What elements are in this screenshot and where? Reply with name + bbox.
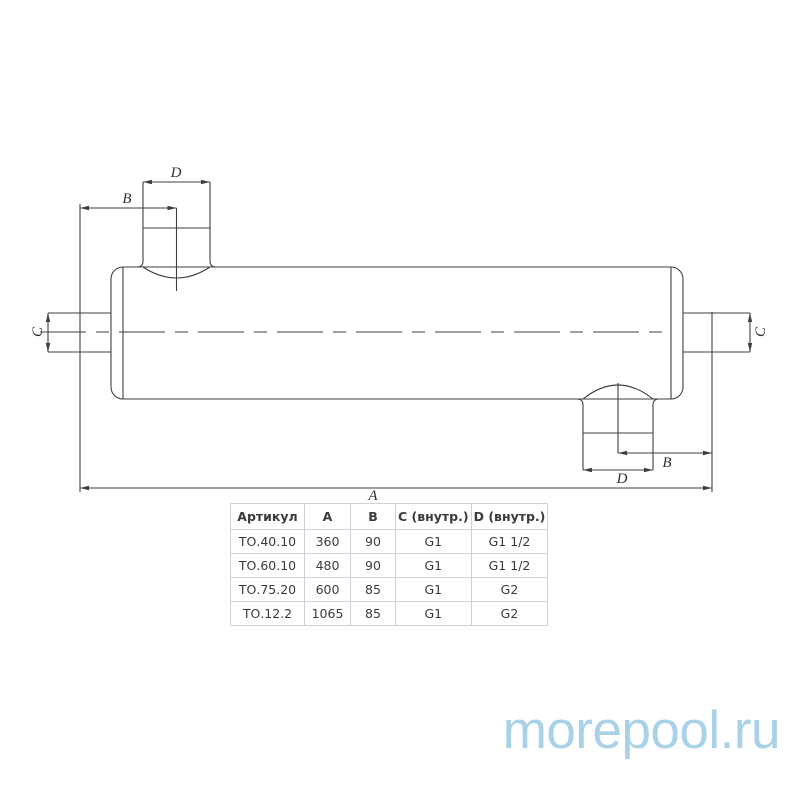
cell-c: G1	[396, 578, 472, 602]
cell-b: 90	[351, 530, 396, 554]
table-header-row: Артикул A B C (внутр.) D (внутр.)	[231, 504, 548, 530]
arrowhead	[618, 451, 627, 455]
arrowhead	[46, 313, 50, 322]
arrowhead	[80, 486, 89, 490]
right-port	[683, 313, 750, 352]
dimension-d-top: D	[143, 165, 210, 184]
cell-a: 600	[305, 578, 351, 602]
bottom-nozzle-right-fillet	[653, 399, 659, 405]
cell-c: G1	[396, 602, 472, 626]
vessel-body	[111, 267, 683, 399]
table-row: ТО.12.2 1065 85 G1 G2	[231, 602, 548, 626]
col-header-article: Артикул	[231, 504, 305, 530]
bottom-nozzle-left-fillet	[577, 399, 583, 405]
technical-drawing: D B C C D	[0, 0, 800, 800]
dimension-c-right: C	[748, 313, 769, 352]
table-row: ТО.60.10 480 90 G1 G1 1/2	[231, 554, 548, 578]
cell-article: ТО.60.10	[231, 554, 305, 578]
dim-label-c-left: C	[30, 326, 46, 337]
cell-b: 90	[351, 554, 396, 578]
dim-label-c-right: C	[753, 326, 769, 337]
col-header-d-inner: D (внутр.)	[471, 504, 548, 530]
dim-label-b-bottom: B	[662, 455, 671, 471]
page: { "drawing": { "labels": { "a": "A", "b"…	[0, 0, 800, 800]
cell-article: ТО.75.20	[231, 578, 305, 602]
col-header-b: B	[351, 504, 396, 530]
cell-d: G2	[471, 602, 548, 626]
cell-article: ТО.40.10	[231, 530, 305, 554]
dim-label-b-top: B	[122, 191, 131, 207]
arrowhead	[748, 313, 752, 322]
arrowhead	[583, 468, 592, 472]
dimension-b-top: B	[80, 191, 177, 210]
col-header-c-inner: C (внутр.)	[396, 504, 472, 530]
cell-d: G1 1/2	[471, 554, 548, 578]
cell-c: G1	[396, 530, 472, 554]
cell-article: ТО.12.2	[231, 602, 305, 626]
dim-label-d-bottom: D	[616, 471, 628, 487]
dimensions-table: Артикул A B C (внутр.) D (внутр.) ТО.40.…	[230, 503, 548, 626]
table-row: ТО.75.20 600 85 G1 G2	[231, 578, 548, 602]
top-nozzle-left-fillet	[137, 261, 143, 267]
arrowhead	[644, 468, 653, 472]
dimension-b-bottom: B	[618, 451, 712, 471]
arrowhead	[143, 180, 152, 184]
col-header-a: A	[305, 504, 351, 530]
site-watermark: morepool.ru	[503, 704, 780, 757]
cell-d: G1 1/2	[471, 530, 548, 554]
arrowhead	[201, 180, 210, 184]
table-row: ТО.40.10 360 90 G1 G1 1/2	[231, 530, 548, 554]
arrowhead	[46, 343, 50, 352]
cell-d: G2	[471, 578, 548, 602]
dimension-a: A	[80, 486, 712, 504]
arrowhead	[703, 486, 712, 490]
dimension-d-bottom: D	[583, 468, 653, 487]
dim-label-a: A	[367, 488, 378, 504]
cell-b: 85	[351, 578, 396, 602]
arrowhead	[703, 451, 712, 455]
cell-a: 360	[305, 530, 351, 554]
cell-b: 85	[351, 602, 396, 626]
arrowhead	[80, 206, 89, 210]
cell-a: 480	[305, 554, 351, 578]
dim-label-d-top: D	[170, 165, 182, 181]
cell-c: G1	[396, 554, 472, 578]
top-nozzle-right-fillet	[210, 261, 216, 267]
arrowhead	[168, 206, 177, 210]
cell-a: 1065	[305, 602, 351, 626]
arrowhead	[748, 343, 752, 352]
vessel-shell	[111, 267, 683, 399]
